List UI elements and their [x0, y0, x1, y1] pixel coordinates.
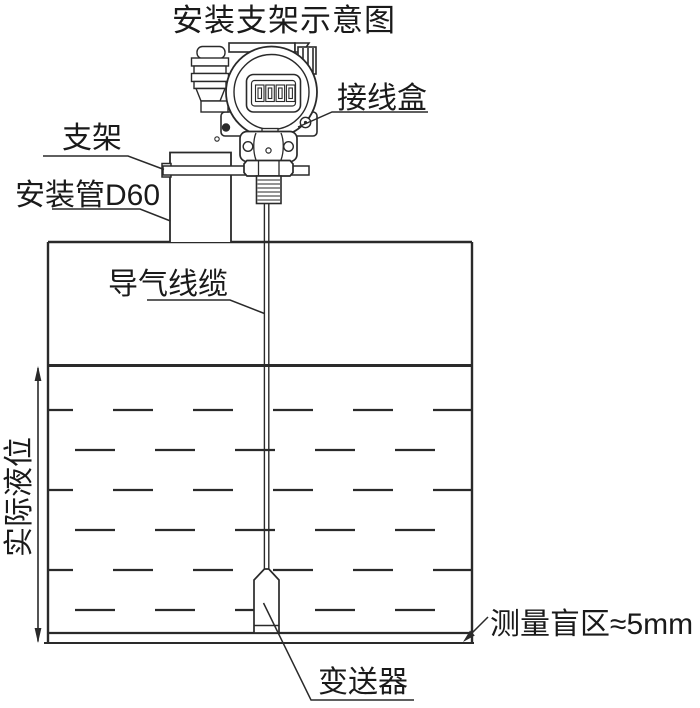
bracket-leader: [43, 156, 164, 170]
lcd-display: [247, 75, 301, 113]
page: 安装支架示意图: [0, 0, 700, 708]
annotations: 接线盒 支架 安装管D60 导气线缆 变送器 测量盲区≈5mm: [15, 82, 693, 700]
blind-zone-label: 测量盲区≈5mm: [490, 608, 693, 641]
mounting-pipe-label: 安装管D60: [15, 179, 160, 212]
threaded-stub: [257, 176, 282, 204]
actual-level-label: 实际液位: [3, 437, 36, 557]
hex-nut: [244, 161, 293, 177]
air-cable: [264, 204, 268, 572]
arrow-up-icon: [35, 366, 42, 381]
diagram-svg: 安装支架示意图: [0, 0, 700, 708]
arrow-down-icon: [35, 628, 42, 643]
dimension-actual-level: 实际液位: [3, 366, 41, 643]
bracket-label: 支架: [62, 122, 122, 155]
probe: [254, 569, 279, 633]
bolt-left: [222, 123, 230, 131]
cable-gland-icon: [192, 47, 229, 113]
air-cable-label: 导气线缆: [108, 268, 228, 301]
air-cable-leader: [147, 300, 264, 314]
page-title: 安装支架示意图: [172, 3, 396, 38]
junction-box-label: 接线盒: [337, 82, 427, 115]
transmitter-label: 变送器: [318, 666, 408, 699]
bolt-left-small: [215, 137, 219, 141]
neck-yoke: [240, 129, 297, 162]
